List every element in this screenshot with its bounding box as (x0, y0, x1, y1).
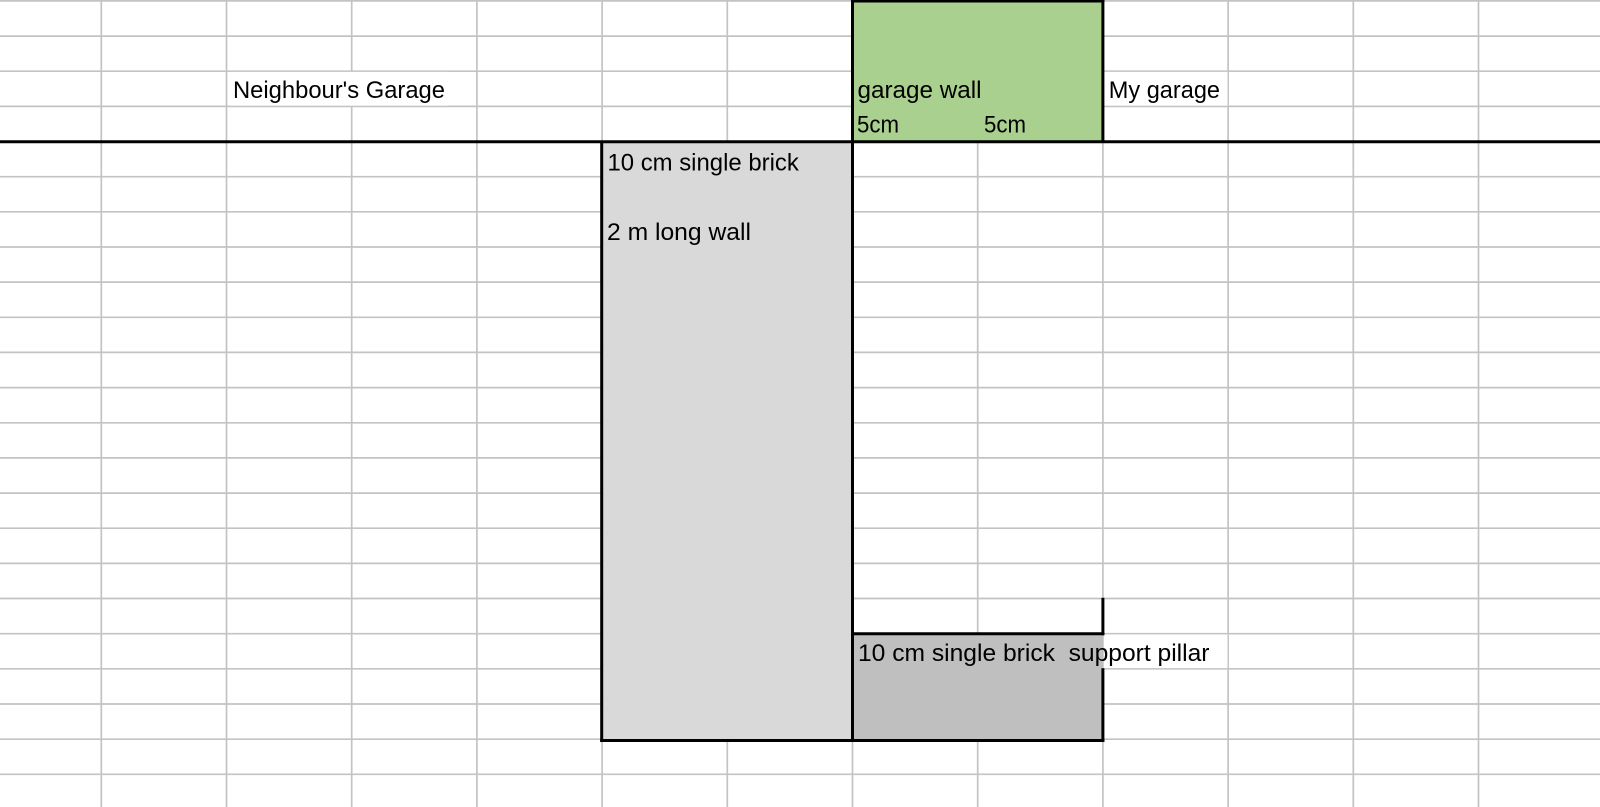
svg-text:5cm: 5cm (857, 111, 899, 138)
svg-text:5cm: 5cm (984, 111, 1026, 138)
svg-text:My garage: My garage (1109, 77, 1220, 104)
svg-text:garage wall: garage wall (858, 77, 982, 104)
svg-text:2 m long wall: 2 m long wall (607, 219, 751, 246)
svg-text:10 cm single brick: 10 cm single brick (608, 150, 800, 177)
svg-text:Neighbour's Garage: Neighbour's Garage (233, 77, 445, 104)
svg-text:10 cm single brick support pi: 10 cm single brick support pillar (858, 640, 1210, 667)
